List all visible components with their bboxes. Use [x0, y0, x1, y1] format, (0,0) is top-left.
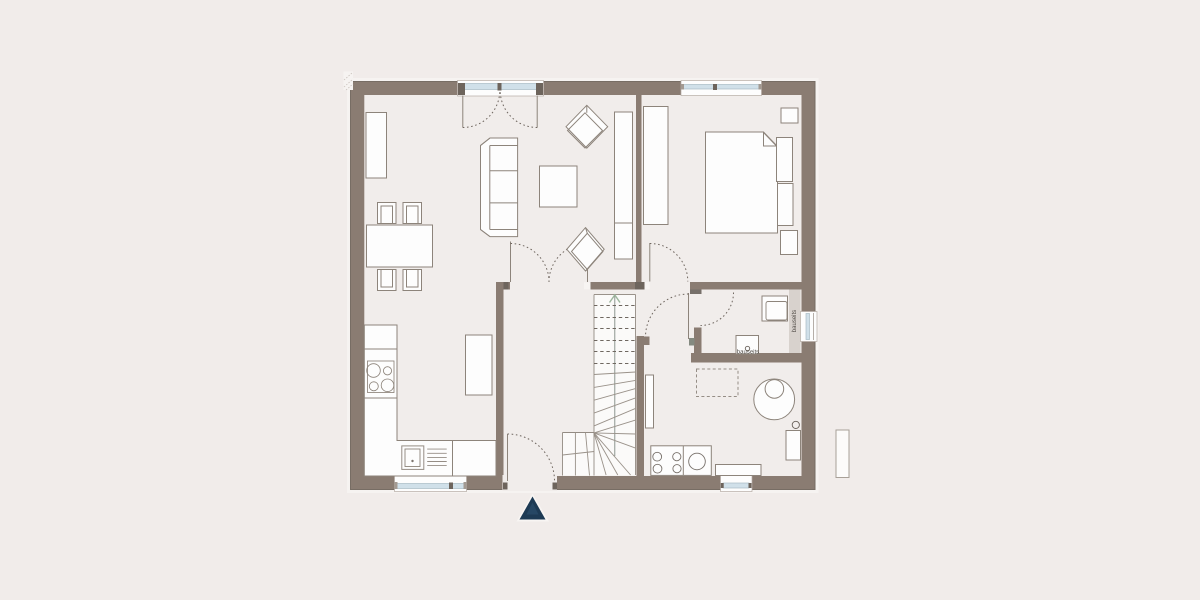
svg-text:bauseits: bauseits	[792, 310, 798, 332]
svg-text:bauseits: bauseits	[737, 349, 759, 355]
